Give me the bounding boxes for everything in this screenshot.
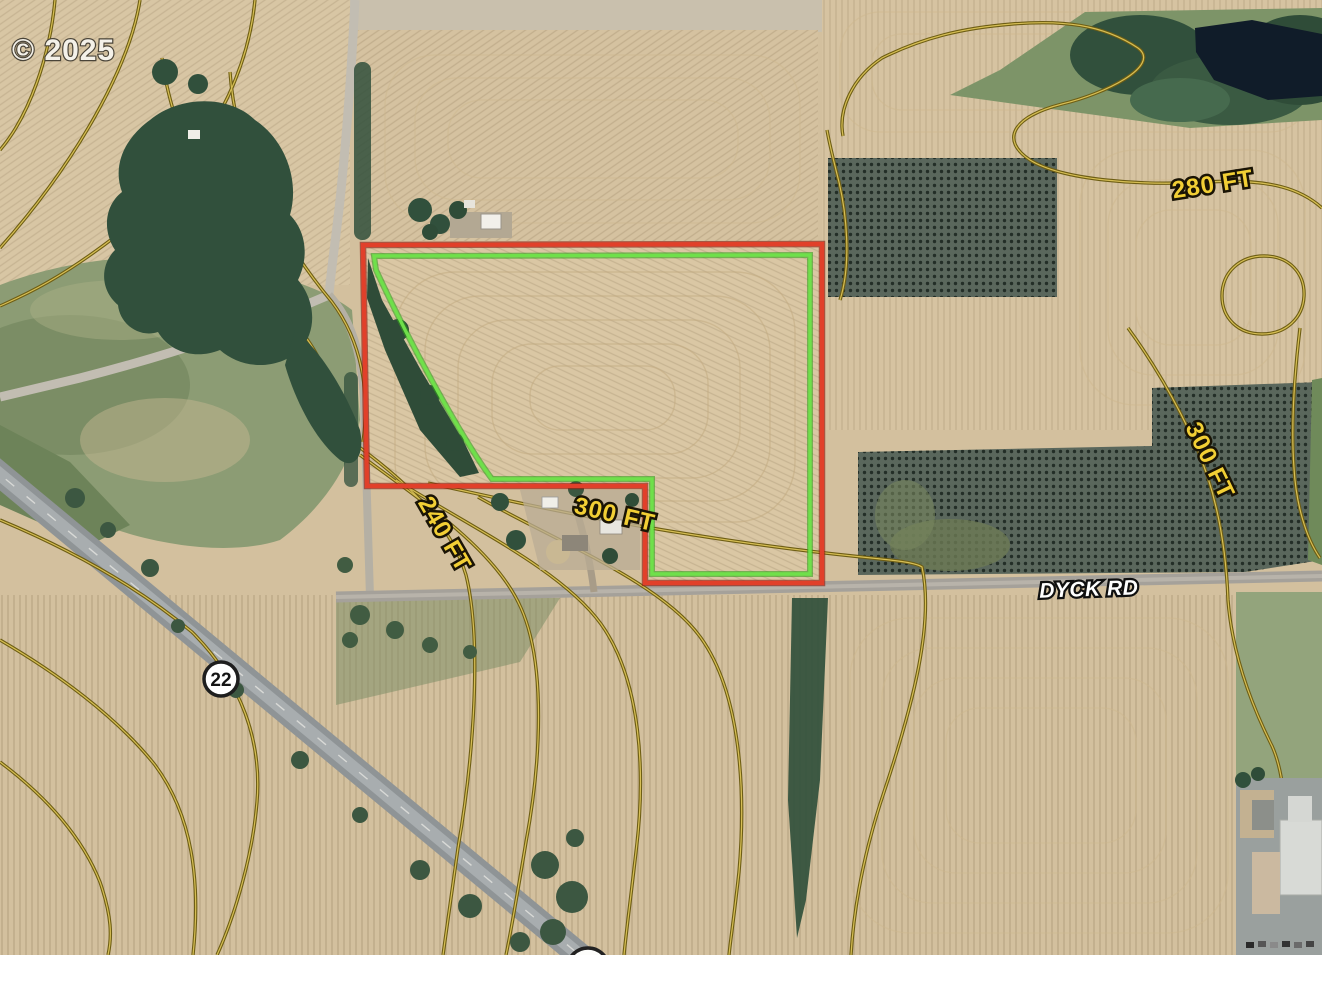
bottom-white-strip [0,955,1322,991]
small-building-nw [188,130,200,139]
copyright-watermark: © 2025 [12,34,115,67]
highway-22-shield: 22 [204,662,238,696]
highway-22-shield-number: 22 [210,670,231,691]
dyck-road-label: DYCK RD [1039,576,1139,602]
orchard-block-north [828,158,1057,297]
industrial-site [1235,767,1322,955]
map-canvas: 280 FT 300 FT 240 FT 300 FT DYCK RD 22 ©… [0,0,1322,991]
satellite-parcel-map: 280 FT 300 FT 240 FT 300 FT DYCK RD 22 ©… [0,0,1322,991]
grass-east [1236,592,1322,780]
